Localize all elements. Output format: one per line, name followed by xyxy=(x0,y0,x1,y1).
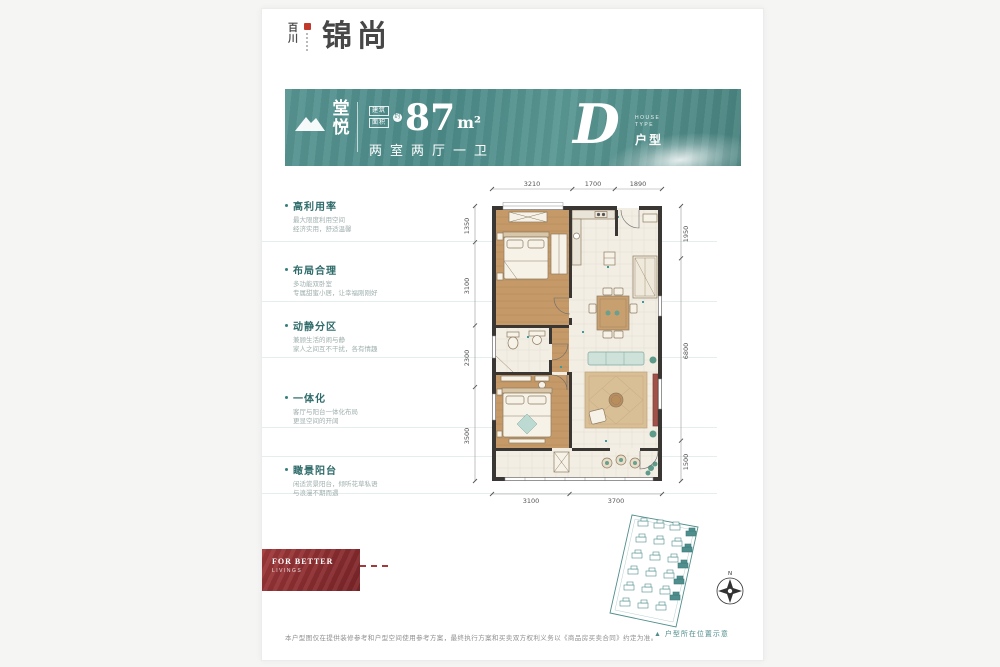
bullet-icon xyxy=(285,204,288,207)
bullet-icon xyxy=(285,268,288,271)
floorplan-drawing: 3210 1700 1890 3100 3700 1350 3100 2300 … xyxy=(457,176,702,506)
house-type-en-1: HOUSE xyxy=(635,115,660,122)
bullet-icon xyxy=(285,324,288,327)
feature-line: 与浪漫不期而遇 xyxy=(293,489,378,498)
feature-item-3: 动静分区 兼顾生活的闹与静 家人之间互不干扰，各有情趣 xyxy=(285,318,378,354)
compass-north-label: N xyxy=(728,571,732,577)
slogan-box: FOR BETTER LIVINGS xyxy=(262,549,360,591)
feature-line: 客厅与阳台一体化布局 xyxy=(293,408,358,417)
area-block: 建筑 面积 约 87 m² 两室两厅一卫 xyxy=(369,99,495,159)
dim-top-2: 1700 xyxy=(585,180,602,188)
feature-line: 更显空间的开阔 xyxy=(293,417,358,426)
feature-line: 闲适赏景阳台，倾听花草私语 xyxy=(293,480,378,489)
site-plan-caption: ▲ 户型所在位置示意 xyxy=(654,629,729,639)
dim-left-1: 1350 xyxy=(463,218,471,235)
slogan-line-2: LIVINGS xyxy=(272,568,360,574)
dim-top-3: 1890 xyxy=(630,180,647,188)
dim-left-2: 3100 xyxy=(463,278,471,295)
brand-main-text: 锦尚 xyxy=(322,17,392,57)
feature-title: 一体化 xyxy=(293,390,326,405)
bullet-icon xyxy=(285,396,288,399)
dim-right-2: 6800 xyxy=(682,343,690,360)
brand-vertical-text: 百川 xyxy=(288,23,300,45)
flyer-page: 百川 锦尚 堂 悦 建筑 面积 约 87 xyxy=(261,8,764,661)
logo-tagline-decoration xyxy=(306,33,308,51)
bullet-icon xyxy=(285,468,288,471)
feature-line: 多功能双卧室 xyxy=(293,280,378,289)
area-label: 建筑 面积 xyxy=(369,105,389,129)
feature-line: 最大限度利用空间 xyxy=(293,216,352,225)
product-name: 堂 悦 xyxy=(331,99,351,137)
area-value: 87 xyxy=(405,99,455,137)
feature-title: 布局合理 xyxy=(293,262,337,277)
house-type-block: D HOUSE TYPE 户型 xyxy=(573,93,683,163)
feature-title: 动静分区 xyxy=(293,318,337,333)
house-type-en: HOUSE TYPE xyxy=(635,115,660,129)
logo-seal-column xyxy=(302,17,314,57)
house-type-en-2: TYPE xyxy=(635,122,660,129)
brand-logo: 百川 锦尚 xyxy=(288,17,392,63)
dim-top-1: 3210 xyxy=(524,180,541,188)
room-layout-text: 两室两厅一卫 xyxy=(369,140,495,159)
banner-divider xyxy=(357,102,358,152)
header-banner: 堂 悦 建筑 面积 约 87 m² 两室两厅一卫 D HOUSE TYPE xyxy=(285,89,741,166)
dim-bottom-1: 3100 xyxy=(523,497,540,505)
dim-left-4: 3500 xyxy=(463,428,471,445)
feature-line: 专属甜蜜小居，让幸福刚刚好 xyxy=(293,289,378,298)
area-label-top: 建筑 xyxy=(369,106,389,116)
site-plan: N xyxy=(602,507,760,639)
feature-item-4: 一体化 客厅与阳台一体化布局 更显空间的开阔 xyxy=(285,390,358,426)
product-char-1: 堂 xyxy=(331,99,351,118)
seal-icon xyxy=(304,23,311,30)
product-char-2: 悦 xyxy=(331,118,351,137)
area-unit: m² xyxy=(457,113,481,132)
product-name-block: 堂 悦 xyxy=(293,97,359,159)
house-type-letter: D xyxy=(573,89,620,159)
feature-line: 家人之间互不干扰，各有情趣 xyxy=(293,345,378,354)
dim-right-1: 1950 xyxy=(682,226,690,243)
compass-icon: N xyxy=(717,571,743,604)
slogan-line-1: FOR BETTER xyxy=(272,557,360,566)
mountain-icon xyxy=(293,113,327,133)
feature-line: 兼顾生活的闹与静 xyxy=(293,336,378,345)
area-label-bottom: 面积 xyxy=(369,118,389,128)
feature-item-5: 瞰景阳台 闲适赏景阳台，倾听花草私语 与浪漫不期而遇 xyxy=(285,462,378,498)
feature-item-2: 布局合理 多功能双卧室 专属甜蜜小居，让幸福刚刚好 xyxy=(285,262,378,298)
feature-line: 经济实用，舒适温馨 xyxy=(293,225,352,234)
house-type-cn: 户型 xyxy=(635,131,663,148)
feature-title: 高利用率 xyxy=(293,198,337,213)
dashed-line-decoration xyxy=(360,565,388,567)
feature-item-1: 高利用率 最大限度利用空间 经济实用，舒适温馨 xyxy=(285,198,352,234)
dim-bottom-2: 3700 xyxy=(608,497,625,505)
feature-title: 瞰景阳台 xyxy=(293,462,337,477)
approx-badge: 约 xyxy=(393,113,402,122)
disclaimer-text: 本户型图仅在提供装修参考和户型空间使用参考方案，最终执行方案和买卖双方权利义务以… xyxy=(285,632,625,642)
dim-left-3: 2300 xyxy=(463,350,471,367)
dim-right-3: 1500 xyxy=(682,454,690,471)
